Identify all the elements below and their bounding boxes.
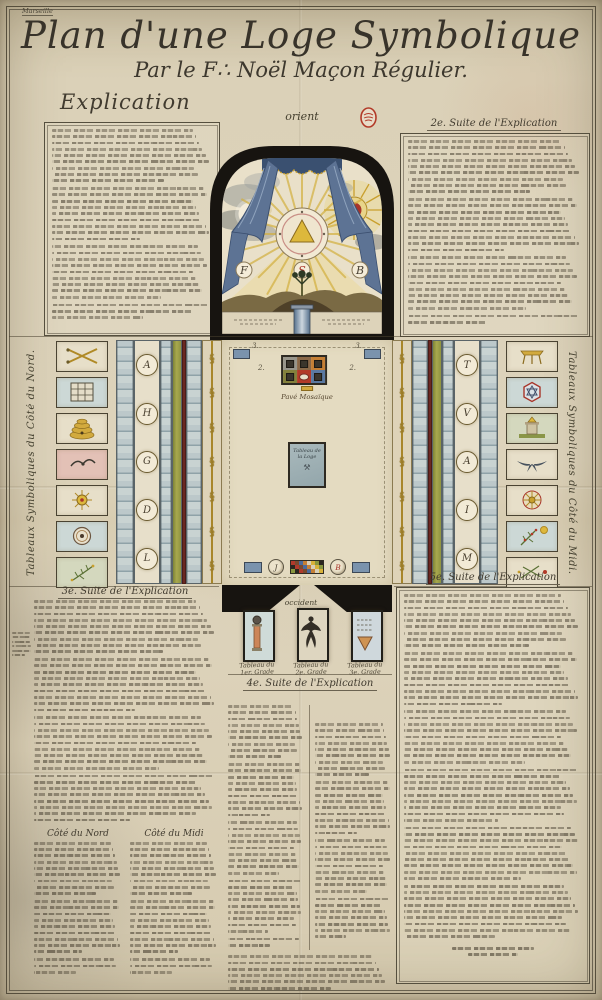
handwriting-line <box>52 200 193 203</box>
south-side-caption: Tableaux Symboliques du Côté du Midi. <box>566 342 577 584</box>
handwriting-line <box>404 904 575 907</box>
handwriting-line <box>228 821 297 824</box>
cord-knot-icon: § <box>399 421 405 434</box>
handwriting-line <box>34 806 212 809</box>
brick-band <box>412 340 428 584</box>
handwriting-line <box>34 854 115 857</box>
handwriting-line <box>228 886 295 889</box>
handwriting-line <box>408 256 566 259</box>
handwriting-line <box>52 245 198 248</box>
cote-nord-heading: Côté du Nord <box>34 829 122 839</box>
floor-mark: 3. <box>355 342 362 350</box>
cord-knot-icon: § <box>209 421 215 434</box>
handwriting-line <box>315 787 390 790</box>
cord-knot-icon: § <box>399 352 405 365</box>
occident-label: occident <box>271 598 331 607</box>
bench-medallion: L <box>136 548 158 570</box>
handwriting-line <box>34 900 118 903</box>
handwriting-line <box>52 277 196 280</box>
suite3-text-block: Côté du Nord Côté du Midi <box>34 600 218 977</box>
brick-band <box>116 340 134 584</box>
handwriting-line <box>408 159 572 162</box>
handwriting-line <box>228 788 297 791</box>
explication-text-block <box>44 122 220 336</box>
north-symbol-radiant-star-emblem-icon <box>56 485 108 516</box>
handwriting-line <box>34 644 201 647</box>
handwriting-line <box>52 225 206 228</box>
knotted-cord-border: §§§§§§§ <box>392 340 412 584</box>
brick-band <box>480 340 498 584</box>
south-symbol-hexagram-seal-icon <box>506 377 558 408</box>
handwriting-line <box>404 871 577 874</box>
handwriting-line <box>404 897 571 900</box>
cord-knot-icon: § <box>209 525 215 538</box>
north-symbols-column <box>56 341 108 588</box>
handwriting-line <box>404 761 525 764</box>
handwriting-line <box>404 600 564 603</box>
handwriting-line <box>34 606 200 609</box>
handwriting-line <box>315 773 369 776</box>
handwriting-line <box>404 619 575 622</box>
pave-cell <box>283 357 297 370</box>
north-symbol-crossed-swords-icon <box>56 341 108 372</box>
handwriting-line <box>408 288 565 291</box>
handwriting-line <box>408 321 488 324</box>
handwriting-line <box>315 794 383 797</box>
handwriting-line <box>12 641 30 643</box>
handwriting-line <box>408 178 563 181</box>
suite5-text-block <box>396 587 590 984</box>
grade1-panel-column-with-globe-icon <box>243 610 275 662</box>
tableau-loge-emblem-icon: ⚒ <box>303 463 310 472</box>
handwriting-line <box>228 730 300 733</box>
explication-heading: Explication <box>60 90 191 114</box>
handwriting-line <box>52 173 198 176</box>
bench-medallion: A <box>456 451 478 473</box>
handwriting-line <box>130 880 208 883</box>
handwriting-line <box>228 968 379 971</box>
handwriting-line <box>34 892 96 895</box>
handwriting-line <box>408 236 575 239</box>
handwriting-line <box>34 600 196 603</box>
handwriting-line <box>228 834 300 837</box>
handwriting-line <box>228 865 299 868</box>
handwriting-line <box>404 607 568 610</box>
handwriting-line <box>408 269 573 272</box>
manuscript-page: Marseille Plan d'une Loge Symbolique Par… <box>0 0 602 1000</box>
handwriting-line <box>315 800 385 803</box>
handwriting-line <box>228 880 302 883</box>
brick-band <box>442 340 454 584</box>
handwriting-line <box>34 913 111 916</box>
pedestal-icon <box>291 305 313 334</box>
handwriting-line <box>404 916 562 919</box>
handwriting-line <box>404 594 561 597</box>
handwriting-line <box>34 748 200 751</box>
bench-medallion: M <box>456 548 478 570</box>
handwriting-line <box>408 198 573 201</box>
handwriting-line <box>130 971 172 974</box>
handwriting-line <box>130 892 192 895</box>
handwriting-line <box>408 300 572 303</box>
handwriting-line <box>228 987 331 990</box>
radiant-delta-icon <box>276 208 328 260</box>
handwriting-line <box>228 736 302 739</box>
handwriting-line <box>34 760 207 763</box>
cord-knot-icon: § <box>209 455 215 468</box>
handwriting-line <box>228 859 297 862</box>
brick-band <box>186 340 202 584</box>
handwriting-line <box>52 219 202 222</box>
cote-nord-column: Côté du Nord <box>34 829 122 977</box>
grade3-panel-inverted-triangle-icon <box>351 610 383 662</box>
handwriting-line <box>34 658 209 661</box>
handwriting-line <box>130 944 216 947</box>
handwriting-line <box>52 193 207 196</box>
handwriting-line <box>228 898 298 901</box>
cord-knot-icon: § <box>209 490 215 503</box>
handwriting-line <box>404 729 577 732</box>
globe-j: J <box>268 559 284 575</box>
handwriting-line <box>408 263 570 266</box>
handwriting-line <box>228 801 300 804</box>
handwriting-line <box>34 781 198 784</box>
handwriting-line <box>404 781 566 784</box>
handwriting-line <box>130 906 215 909</box>
handwritten-text <box>130 842 218 977</box>
handwriting-line <box>228 980 385 983</box>
globe-b: B <box>330 559 346 575</box>
handwriting-line <box>130 842 207 845</box>
handwriting-line <box>130 919 209 922</box>
handwriting-line <box>34 625 211 628</box>
handwriting-line <box>52 310 194 313</box>
cote-midi-column: Côté du Midi <box>130 829 218 977</box>
handwriting-line <box>228 795 299 798</box>
handwriting-line <box>34 867 118 870</box>
handwriting-line <box>404 769 578 772</box>
cord-knot-icon: § <box>399 559 405 572</box>
handwriting-line <box>228 763 300 766</box>
handwriting-line <box>408 282 561 285</box>
handwriting-line <box>34 723 205 726</box>
handwriting-line <box>404 833 575 836</box>
handwriting-line <box>34 638 198 641</box>
handwritten-text <box>52 129 212 322</box>
handwriting-line <box>228 955 372 958</box>
handwriting-line <box>315 761 384 764</box>
warden-table-rect <box>352 562 370 573</box>
handwriting-line <box>34 880 112 883</box>
marginal-annotation <box>12 632 32 658</box>
handwriting-line <box>404 652 573 655</box>
handwriting-line <box>34 842 111 845</box>
handwriting-line <box>315 729 385 732</box>
handwriting-line <box>228 705 294 708</box>
north-symbol-sprig-of-acacia-icon <box>56 557 108 588</box>
handwriting-line <box>404 638 566 641</box>
south-symbol-compass-rosette-icon <box>506 485 558 516</box>
handwriting-line <box>34 729 209 732</box>
floor-mark: 2. <box>349 364 356 372</box>
handwriting-line <box>34 965 116 968</box>
handwriting-line <box>404 677 568 680</box>
handwriting-line <box>34 958 114 961</box>
handwriting-line <box>12 632 30 634</box>
handwriting-line <box>228 853 296 856</box>
handwriting-line <box>52 231 209 234</box>
handwriting-line <box>52 179 164 182</box>
handwriting-line <box>52 258 204 261</box>
handwriting-line <box>34 775 214 778</box>
pave-label: Pavé Mosaïque <box>281 393 333 401</box>
handwriting-line <box>228 892 297 895</box>
handwriting-line <box>404 839 578 842</box>
handwriting-line <box>408 211 561 214</box>
handwriting-line <box>34 873 120 876</box>
handwriting-line <box>34 619 207 622</box>
north-symbol-tracing-board-grid-icon <box>56 377 108 408</box>
handwriting-line <box>315 832 358 835</box>
handwriting-line <box>404 819 498 822</box>
handwriting-line <box>130 900 214 903</box>
handwriting-line <box>130 925 211 928</box>
south-symbol-flowering-branch-icon <box>506 521 558 552</box>
handwriting-line <box>315 736 386 739</box>
handwriting-line <box>315 781 389 784</box>
handwriting-line <box>130 932 213 935</box>
handwriting-line <box>404 644 529 647</box>
handwriting-line <box>404 717 570 720</box>
handwriting-line <box>52 238 140 241</box>
handwriting-line <box>52 304 209 307</box>
bench-medallion: G <box>136 451 158 473</box>
handwriting-line <box>404 696 578 699</box>
handwriting-line <box>34 716 201 719</box>
handwriting-line <box>52 142 199 145</box>
handwriting-line <box>404 852 566 855</box>
handwritten-text <box>315 723 393 942</box>
handwriting-line <box>34 938 118 941</box>
floor-west-row: J B <box>222 559 392 575</box>
south-symbol-pedestal-with-triangle-icon <box>506 413 558 444</box>
handwriting-line <box>408 165 575 168</box>
handwriting-line <box>130 854 211 857</box>
handwriting-line <box>404 846 562 849</box>
cord-knot-icon: § <box>399 525 405 538</box>
handwriting-line <box>52 154 206 157</box>
handwriting-line <box>315 916 387 919</box>
bench-medallion: A <box>136 354 158 376</box>
handwriting-line <box>52 212 199 215</box>
pave-cell <box>297 370 311 383</box>
handwriting-line <box>228 782 296 785</box>
handwriting-line <box>315 723 383 726</box>
handwriting-line <box>52 187 204 190</box>
handwriting-line <box>315 910 386 913</box>
handwriting-line <box>315 871 385 874</box>
handwriting-line <box>228 938 299 941</box>
handwritten-text <box>228 955 392 993</box>
north-symbol-bird-on-pink-field-icon <box>56 449 108 480</box>
handwriting-line <box>12 650 31 652</box>
tableau-loge-label: la Loge <box>298 454 317 460</box>
handwriting-line <box>12 654 25 656</box>
handwriting-line <box>315 819 389 822</box>
mosaic-checker-strip <box>290 560 324 574</box>
pave-cell <box>311 357 325 370</box>
floor-mark: 3. <box>252 342 259 350</box>
handwriting-line <box>408 307 526 310</box>
handwriting-line <box>130 913 207 916</box>
handwriting-line <box>34 735 212 738</box>
handwriting-line <box>228 749 297 752</box>
handwriting-line <box>228 814 270 817</box>
handwriting-line <box>228 872 279 875</box>
south-benches-strips: §§§§§§§ TVAIM <box>392 340 498 584</box>
bench-medallion: T <box>456 354 478 376</box>
handwriting-line <box>408 217 565 220</box>
handwriting-line <box>315 825 391 828</box>
handwriting-line <box>34 650 163 653</box>
handwriting-line <box>404 613 571 616</box>
handwriting-line <box>315 858 390 861</box>
handwriting-line <box>228 755 281 758</box>
handwriting-line <box>404 723 573 726</box>
handwriting-line <box>34 709 135 712</box>
north-benches-strips: AHGDL §§§§§§§ <box>116 340 222 584</box>
handwriting-line <box>315 813 388 816</box>
handwriting-line <box>315 846 387 849</box>
handwriting-line <box>34 932 117 935</box>
handwriting-line <box>228 769 301 772</box>
handwriting-line <box>404 742 564 745</box>
cote-midi-heading: Côté du Midi <box>130 829 218 839</box>
handwriting-line <box>228 930 268 933</box>
handwriting-line <box>404 658 577 661</box>
handwriting-line <box>34 742 196 745</box>
handwriting-line <box>404 864 573 867</box>
handwriting-line <box>12 636 30 638</box>
handwriting-line <box>404 827 571 830</box>
handwriting-line <box>404 748 568 751</box>
handwriting-line <box>228 944 270 947</box>
handwritten-text <box>408 140 582 327</box>
handwriting-line <box>34 971 76 974</box>
suite2-text-block <box>400 133 590 337</box>
handwriting-line <box>130 886 210 889</box>
handwriting-line <box>315 929 390 932</box>
page-subtitle: Par le F∴ Noël Maçon Régulier. <box>0 58 602 82</box>
handwriting-line <box>34 950 82 953</box>
handwriting-line <box>228 711 296 714</box>
handwriting-line <box>34 696 211 699</box>
handwriting-line <box>408 249 504 252</box>
handwriting-line <box>52 135 196 138</box>
orient-arch-illustration: F S B <box>206 124 398 340</box>
bench-rect <box>364 349 381 359</box>
suite4-left-column <box>228 705 310 950</box>
handwriting-line <box>52 160 209 163</box>
handwriting-line <box>130 950 178 953</box>
handwriting-line <box>34 906 119 909</box>
tableau-de-la-loge: Tableau de la Loge ⚒ <box>288 442 326 488</box>
handwriting-line <box>52 167 194 170</box>
handwriting-line <box>34 919 113 922</box>
handwriting-line <box>34 925 115 928</box>
suite3-heading: 3e. Suite de l'Explication <box>40 586 210 597</box>
handwriting-line <box>52 264 207 267</box>
pave-gold-bar <box>301 386 313 391</box>
suite2-heading: 2e. Suite de l'Explication <box>400 118 588 129</box>
handwriting-line <box>130 938 214 941</box>
handwriting-line <box>315 923 389 926</box>
handwriting-line <box>315 904 384 907</box>
bench-medallion: V <box>456 403 478 425</box>
colophon-line <box>452 947 534 956</box>
handwriting-line <box>315 865 383 868</box>
handwriting-line <box>315 852 389 855</box>
handwriting-line <box>34 702 214 705</box>
brick-band <box>160 340 172 584</box>
handwriting-line <box>315 754 391 757</box>
handwriting-line <box>404 665 561 668</box>
handwritten-text <box>404 594 582 943</box>
handwriting-line <box>228 776 294 779</box>
green-bench-band <box>172 340 182 584</box>
suite4-heading: 4e. Suite de l'Explication <box>228 678 392 689</box>
mosaic-cell <box>319 569 323 573</box>
handwriting-line <box>34 613 203 616</box>
handwriting-line <box>34 677 200 680</box>
south-symbols-column <box>506 341 558 588</box>
handwriting-line <box>408 275 577 278</box>
south-medallion-band: TVAIM <box>454 340 480 584</box>
handwriting-line <box>130 965 212 968</box>
suite5-heading: 5e. Suite de l'Explication <box>398 572 588 583</box>
handwriting-line <box>408 242 579 245</box>
bench-medallion: I <box>456 499 478 521</box>
handwriting-line <box>404 736 561 739</box>
handwriting-line <box>408 294 568 297</box>
handwriting-line <box>408 146 565 149</box>
handwriting-line <box>404 923 566 926</box>
handwriting-line <box>34 848 113 851</box>
north-symbol-beehive-icon <box>56 413 108 444</box>
handwriting-line <box>130 848 209 851</box>
handwriting-line <box>315 935 347 938</box>
handwriting-line <box>404 703 502 706</box>
handwriting-line <box>408 153 568 156</box>
handwriting-line <box>408 140 561 143</box>
north-medallion-band: AHGDL <box>134 340 160 584</box>
handwriting-line <box>404 929 570 932</box>
handwriting-line <box>52 206 196 209</box>
handwriting-line <box>34 671 196 674</box>
handwritten-text <box>228 705 304 950</box>
handwriting-line <box>34 886 114 889</box>
handwriting-line <box>408 230 572 233</box>
handwriting-line <box>315 890 368 893</box>
handwriting-line <box>315 742 388 745</box>
handwriting-line <box>404 813 564 816</box>
handwriting-line <box>12 645 31 647</box>
handwriting-line <box>404 671 564 674</box>
handwriting-line <box>404 794 573 797</box>
cord-knot-icon: § <box>399 490 405 503</box>
handwriting-line <box>228 724 299 727</box>
handwriting-line <box>52 148 202 151</box>
